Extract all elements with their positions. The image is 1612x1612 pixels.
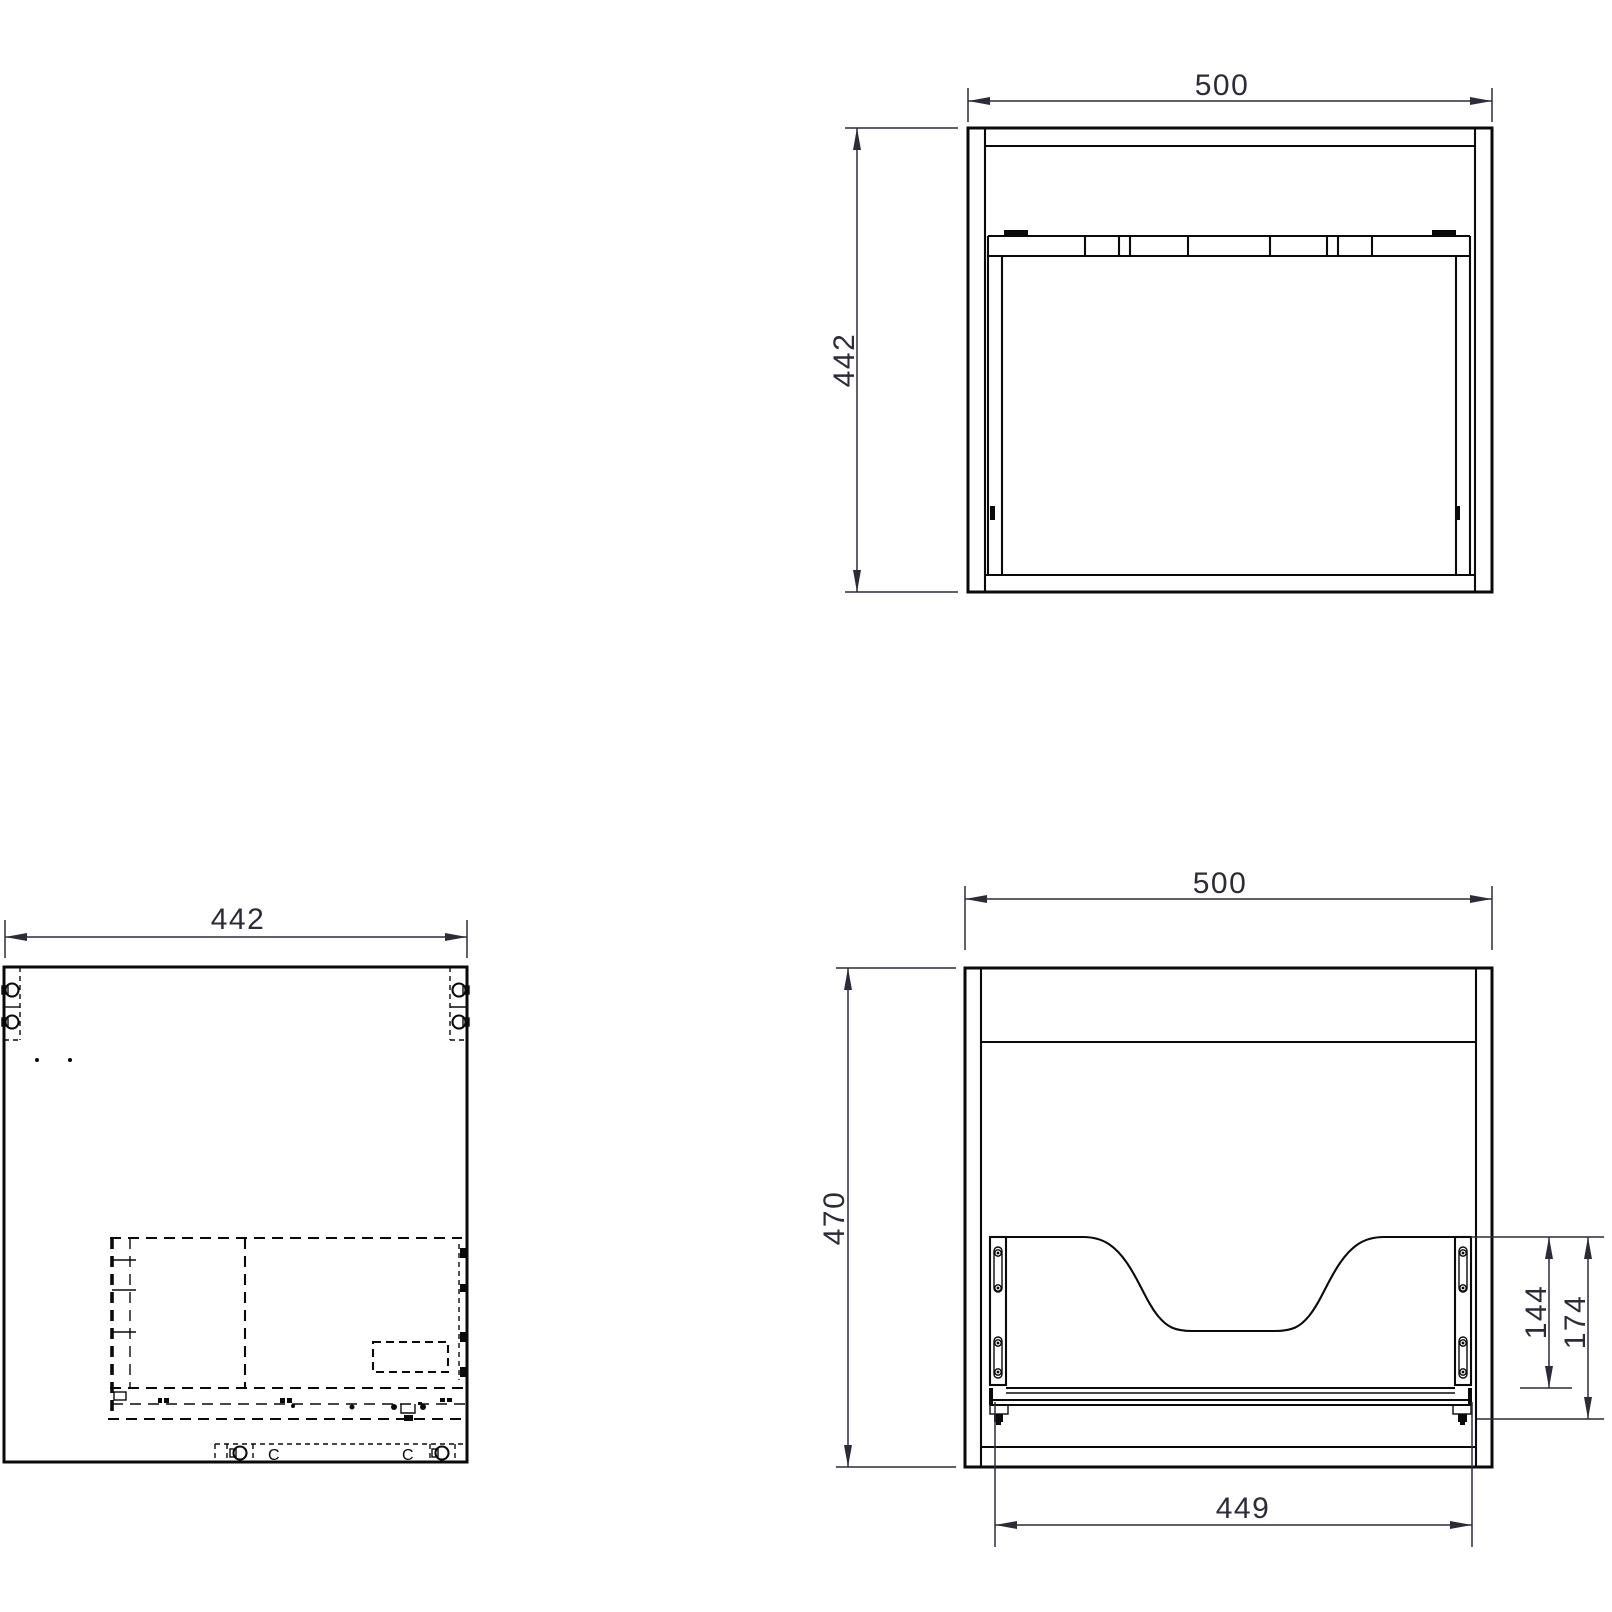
side-panel (4, 967, 467, 1462)
inner-width-label: 449 (1216, 1492, 1271, 1525)
top-width-label: 500 (1195, 69, 1250, 102)
arrow-left-icon (995, 1521, 1017, 1529)
drawer-slide-left (990, 1237, 1006, 1385)
cam-letter: C (402, 1447, 414, 1464)
cam-letter: C (268, 1447, 280, 1464)
back-panel-cutout (1005, 1237, 1455, 1331)
cam-lock-icon (230, 1447, 247, 1460)
screw-icon (1460, 1285, 1466, 1291)
front-height-label: 470 (818, 1191, 851, 1246)
cam-lock-icon (2, 1016, 19, 1029)
cam-lock-icon (432, 1447, 449, 1460)
arrow-right-icon (1470, 895, 1492, 903)
dim-front-height: 470 (818, 968, 956, 1467)
arrow-left-icon (968, 97, 990, 105)
arrow-down-icon (853, 570, 861, 592)
drawer-clip-right (1432, 230, 1456, 237)
foot-bracket-left (990, 1405, 1008, 1425)
arrow-left-icon (965, 895, 987, 903)
front-width-label: 500 (1193, 867, 1248, 900)
arrow-up-icon (844, 968, 852, 990)
arrow-down-icon (844, 1445, 852, 1467)
side-view: C C 442 (2, 903, 469, 1464)
drawer-clip-left (1004, 230, 1028, 237)
arrow-left-icon (5, 933, 27, 941)
screw-icon (995, 1250, 1001, 1256)
side-view-hidden-drawer (108, 1238, 467, 1421)
cutout-to-rail-label: 144 (1520, 1285, 1553, 1340)
arrow-down-icon (1584, 1397, 1592, 1419)
dim-top-width: 500 (968, 69, 1492, 122)
arrow-down-icon (1545, 1366, 1553, 1388)
screw-icon (995, 1285, 1001, 1291)
arrow-up-icon (1584, 1237, 1592, 1259)
dim-front-width: 500 (965, 867, 1492, 950)
cam-lock-icon (453, 984, 470, 997)
front-view-carcass (965, 968, 1492, 1467)
arrow-right-icon (1450, 1521, 1472, 1529)
cutout-to-base-label: 174 (1559, 1295, 1592, 1350)
drawer-slide-right (1455, 1237, 1471, 1385)
dim-inner-width: 449 (995, 1402, 1472, 1547)
arrow-up-icon (853, 128, 861, 150)
hidden-bracket-outline (373, 1342, 448, 1372)
side-depth-label: 442 (211, 903, 266, 936)
arrow-up-icon (1545, 1237, 1553, 1259)
screw-icon (995, 1340, 1001, 1346)
top-view-carcass (968, 128, 1492, 592)
arrow-right-icon (1470, 97, 1492, 105)
screw-icon (1460, 1369, 1466, 1375)
screw-icon (1460, 1340, 1466, 1346)
drawing-sheet: 500 442 (0, 0, 1612, 1612)
pilot-hole-dot (68, 1058, 72, 1062)
pilot-hole-dot (35, 1058, 39, 1062)
top-depth-label: 442 (828, 333, 861, 388)
bottom-rail (989, 1388, 1472, 1405)
technical-drawing-canvas: 500 442 (0, 0, 1612, 1612)
cam-lock-icon (2, 984, 19, 997)
front-view: 500 470 144 174 (818, 867, 1604, 1547)
arrow-right-icon (445, 933, 467, 941)
cam-lock-icon (453, 1016, 470, 1029)
top-view: 500 442 (828, 69, 1492, 592)
dim-top-depth: 442 (828, 128, 958, 592)
screw-icon (1460, 1250, 1466, 1256)
foot-bracket-right (1453, 1405, 1471, 1425)
top-view-drawer-assembly (988, 230, 1470, 575)
dim-side-depth: 442 (5, 903, 467, 958)
screw-icon (995, 1369, 1001, 1375)
